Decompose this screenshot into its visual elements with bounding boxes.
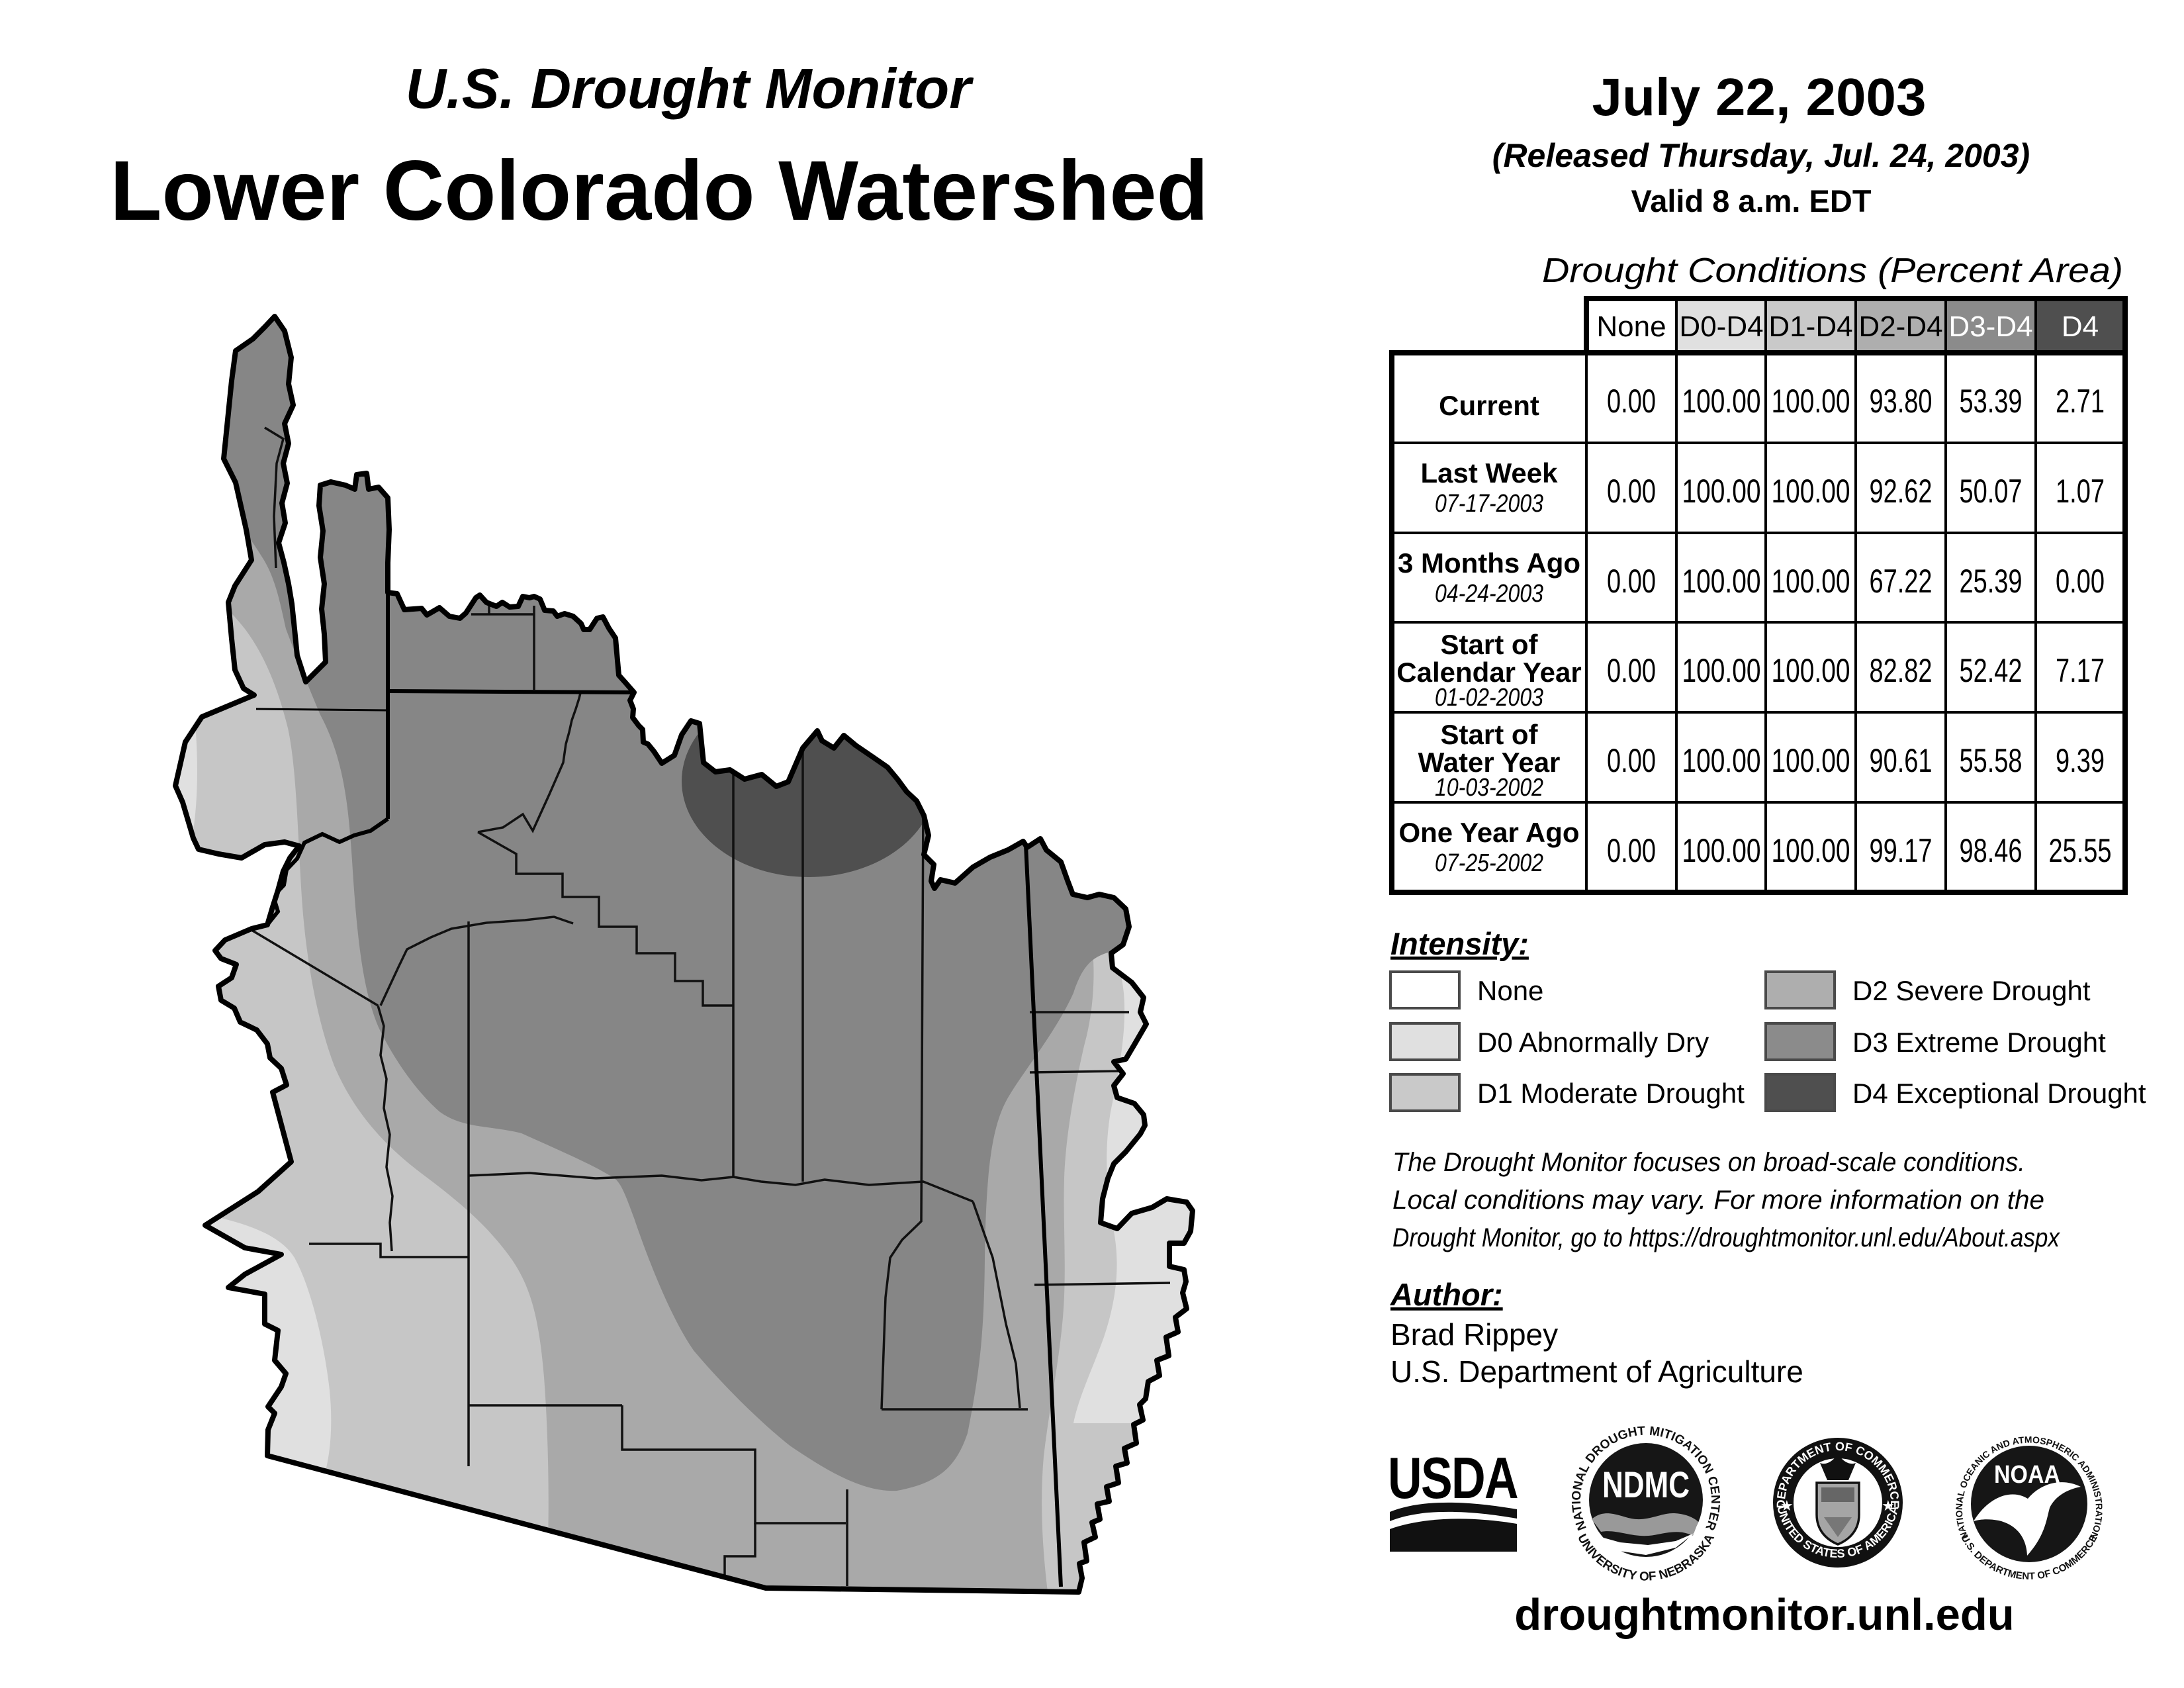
- svg-text:100.00: 100.00: [1682, 473, 1761, 510]
- svg-text:10-03-2002: 10-03-2002: [1435, 774, 1543, 802]
- svg-text:100.00: 100.00: [1682, 832, 1761, 869]
- svg-text:0.00: 0.00: [1607, 832, 1656, 869]
- svg-text:55.58: 55.58: [1960, 742, 2023, 779]
- svg-text:Author:: Author:: [1390, 1277, 1503, 1312]
- svg-text:100.00: 100.00: [1772, 652, 1850, 689]
- svg-text:D4: D4: [2062, 310, 2099, 343]
- svg-text:Drought Monitor, go to https:/: Drought Monitor, go to https://droughtmo…: [1392, 1223, 2061, 1252]
- svg-text:53.39: 53.39: [1960, 383, 2023, 420]
- svg-text:droughtmonitor.unl.edu: droughtmonitor.unl.edu: [1514, 1590, 2014, 1640]
- svg-text:One Year Ago: One Year Ago: [1398, 817, 1579, 848]
- svg-text:U.S. Department of Agriculture: U.S. Department of Agriculture: [1390, 1354, 1803, 1389]
- svg-text:0.00: 0.00: [1607, 742, 1656, 779]
- svg-text:93.80: 93.80: [1870, 383, 1933, 420]
- svg-text:100.00: 100.00: [1772, 832, 1850, 869]
- svg-text:100.00: 100.00: [1682, 742, 1761, 779]
- svg-text:99.17: 99.17: [1870, 832, 1933, 869]
- svg-text:90.61: 90.61: [1870, 742, 1933, 779]
- svg-text:92.62: 92.62: [1870, 473, 1933, 510]
- svg-text:07-25-2002: 07-25-2002: [1435, 849, 1543, 877]
- svg-text:82.82: 82.82: [1870, 652, 1933, 689]
- svg-text:Water Year: Water Year: [1418, 747, 1561, 778]
- svg-text:Local conditions may vary. For: Local conditions may vary. For more info…: [1392, 1186, 2044, 1215]
- svg-text:D2 Severe Drought: D2 Severe Drought: [1852, 975, 2091, 1006]
- svg-text:Last Week: Last Week: [1421, 457, 1559, 489]
- svg-text:Valid 8 a.m. EDT: Valid 8 a.m. EDT: [1631, 183, 1871, 218]
- svg-text:D3 Extreme Drought: D3 Extreme Drought: [1852, 1027, 2106, 1058]
- svg-text:100.00: 100.00: [1772, 473, 1850, 510]
- svg-text:(Released Thursday, Jul. 24, 2: (Released Thursday, Jul. 24, 2003): [1492, 137, 2030, 174]
- svg-text:Lower Colorado Watershed: Lower Colorado Watershed: [110, 144, 1208, 238]
- svg-text:None: None: [1596, 310, 1666, 343]
- svg-text:Brad Rippey: Brad Rippey: [1390, 1317, 1558, 1352]
- svg-text:Calendar Year: Calendar Year: [1396, 657, 1581, 688]
- svg-text:Start of: Start of: [1441, 719, 1539, 750]
- svg-text:0.00: 0.00: [2056, 563, 2105, 600]
- svg-text:100.00: 100.00: [1772, 383, 1850, 420]
- svg-text:U.S. Drought Monitor: U.S. Drought Monitor: [406, 58, 974, 120]
- svg-text:D2-D4: D2-D4: [1858, 310, 1942, 343]
- svg-text:D0 Abnormally Dry: D0 Abnormally Dry: [1477, 1027, 1709, 1058]
- svg-text:0.00: 0.00: [1607, 652, 1656, 689]
- svg-text:D0-D4: D0-D4: [1679, 310, 1763, 343]
- svg-text:USDA: USDA: [1388, 1445, 1518, 1511]
- svg-text:7.17: 7.17: [2056, 652, 2105, 689]
- svg-text:07-17-2003: 07-17-2003: [1435, 490, 1543, 518]
- svg-text:98.46: 98.46: [1960, 832, 2023, 869]
- svg-text:25.39: 25.39: [1960, 563, 2023, 600]
- svg-text:50.07: 50.07: [1960, 473, 2023, 510]
- svg-text:July 22, 2003: July 22, 2003: [1592, 68, 1927, 126]
- svg-text:Intensity:: Intensity:: [1390, 926, 1529, 961]
- svg-text:0.00: 0.00: [1607, 473, 1656, 510]
- svg-text:100.00: 100.00: [1682, 652, 1761, 689]
- svg-text:25.55: 25.55: [2049, 832, 2112, 869]
- svg-text:The Drought Monitor focuses on: The Drought Monitor focuses on broad-sca…: [1392, 1148, 2025, 1177]
- svg-text:100.00: 100.00: [1682, 563, 1761, 600]
- svg-text:D1-D4: D1-D4: [1768, 310, 1852, 343]
- svg-text:67.22: 67.22: [1870, 563, 1933, 600]
- svg-text:Start of: Start of: [1441, 629, 1539, 660]
- svg-text:Drought Conditions (Percent Ar: Drought Conditions (Percent Area): [1542, 252, 2123, 290]
- svg-text:D3-D4: D3-D4: [1948, 310, 2032, 343]
- svg-text:Current: Current: [1439, 390, 1539, 421]
- svg-text:100.00: 100.00: [1772, 563, 1850, 600]
- svg-text:100.00: 100.00: [1682, 383, 1761, 420]
- svg-text:None: None: [1477, 975, 1543, 1006]
- svg-text:★: ★: [1882, 1497, 1895, 1514]
- svg-text:0.00: 0.00: [1607, 383, 1656, 420]
- svg-text:100.00: 100.00: [1772, 742, 1850, 779]
- svg-text:04-24-2003: 04-24-2003: [1435, 580, 1543, 608]
- svg-text:9.39: 9.39: [2056, 742, 2105, 779]
- svg-text:0.00: 0.00: [1607, 563, 1656, 600]
- svg-text:2.71: 2.71: [2056, 383, 2105, 420]
- svg-text:1.07: 1.07: [2056, 473, 2105, 510]
- svg-text:NOAA: NOAA: [1994, 1461, 2060, 1489]
- svg-text:D1 Moderate Drought: D1 Moderate Drought: [1477, 1078, 1745, 1109]
- svg-text:3 Months Ago: 3 Months Ago: [1398, 547, 1580, 579]
- svg-text:52.42: 52.42: [1960, 652, 2023, 689]
- svg-text:01-02-2003: 01-02-2003: [1435, 684, 1543, 712]
- svg-text:NDMC: NDMC: [1602, 1464, 1690, 1505]
- svg-text:D4 Exceptional Drought: D4 Exceptional Drought: [1852, 1078, 2146, 1109]
- svg-text:★: ★: [1780, 1497, 1794, 1514]
